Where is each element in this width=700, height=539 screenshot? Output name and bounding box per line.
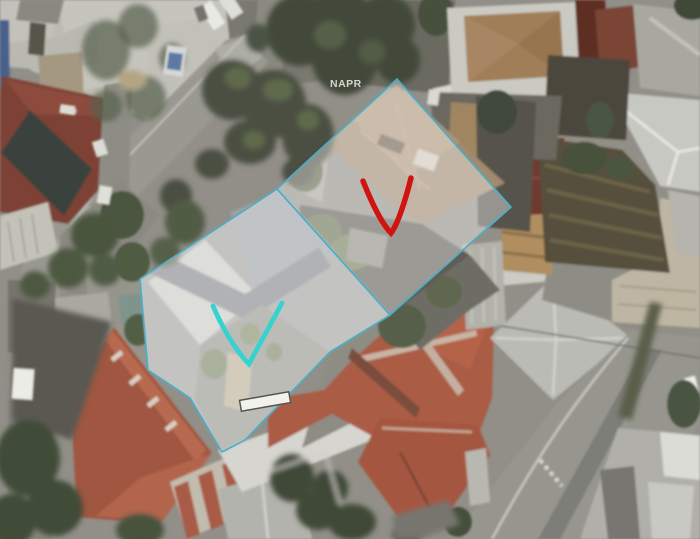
- svg-text:NAPR: NAPR: [330, 78, 362, 90]
